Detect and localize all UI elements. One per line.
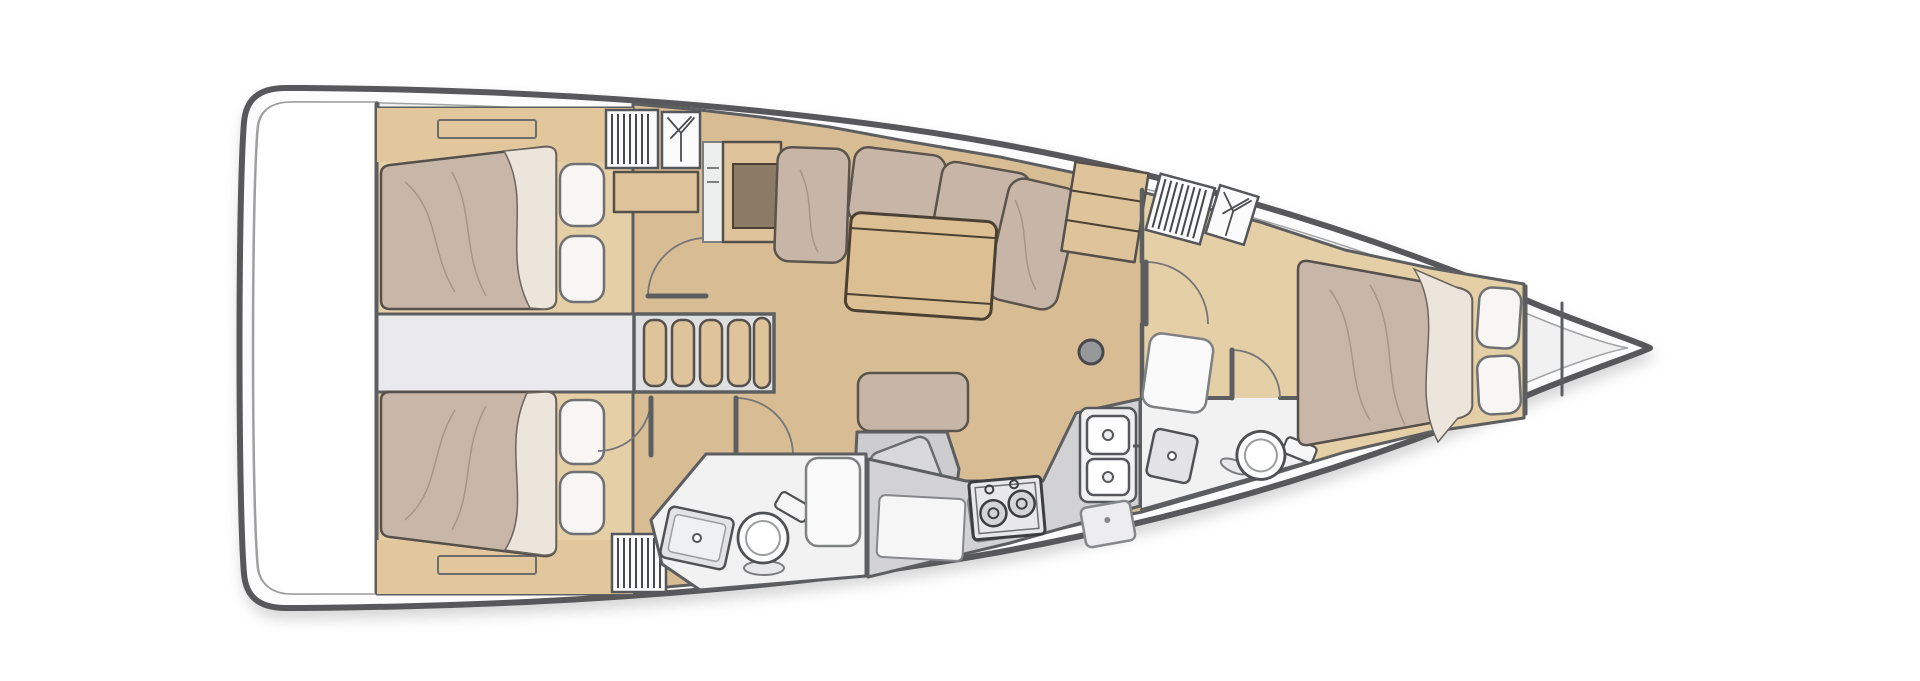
pillow [560,164,604,226]
pillow [560,236,604,302]
bench-seat-cushion [858,373,968,431]
floor-plan-stage [0,0,1920,681]
port-aft-side-shelf [614,172,698,212]
sink-drain [692,533,701,542]
sliding-panel [703,142,723,242]
louver-frame [606,110,658,168]
pillow [560,400,604,464]
icebox [1080,500,1136,548]
dark-desk-panel [733,164,779,228]
sink-drain [1103,430,1113,440]
settee-cushion [774,147,850,263]
icebox-lid [1080,500,1136,548]
sink-drain [1103,472,1113,482]
forward-head-sink [1145,428,1198,484]
companionway-step [700,320,722,386]
stove-burner [979,499,1007,527]
mast-post [1079,340,1103,364]
salon-storage-cabinet [1061,162,1148,262]
companionway [634,314,774,392]
toilet-seat [746,521,780,555]
pillow [1477,355,1522,415]
sink-drain [1167,451,1176,460]
yacht-floor-plan [0,0,1920,681]
companionway-step [728,320,750,386]
shower-pan [806,458,860,546]
companionway-landing [754,318,770,388]
stove-burner [1008,490,1036,518]
salon-folding-table [845,212,997,320]
companionway-step [644,320,666,386]
pillow [560,472,604,534]
port-aft-hanging-wardrobe [662,112,700,168]
pillow [1476,287,1522,350]
louver-slats [612,114,648,164]
shower-pan [1141,332,1215,414]
cabinet-door [876,495,965,561]
swim-platform [254,102,378,594]
forward-head-shower [1141,332,1215,414]
cabinet-body [1061,162,1148,262]
port-aft-louvered-locker [606,110,658,168]
two-burner-stove [969,476,1046,540]
starboard-aft-cabin [377,392,666,594]
companionway-step [672,320,694,386]
engine-compartment-passage [377,314,634,392]
